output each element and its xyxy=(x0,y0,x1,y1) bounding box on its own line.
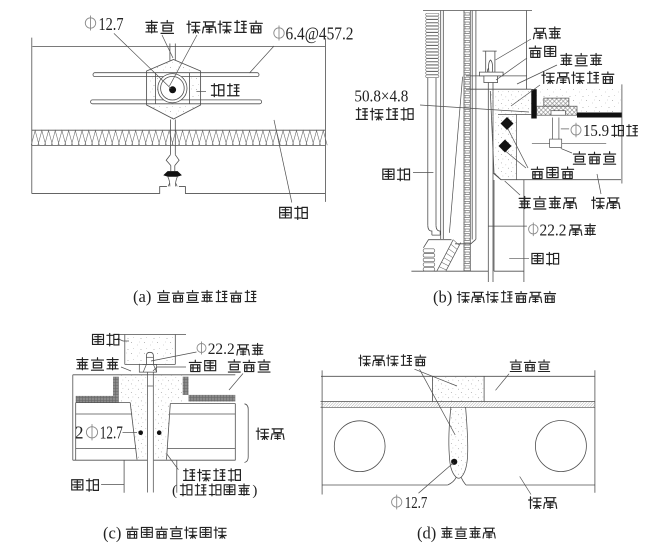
svg-text:50.8×4.8: 50.8×4.8 xyxy=(354,87,408,106)
svg-text:6.4@457.2: 6.4@457.2 xyxy=(286,24,354,44)
svg-text:22.2: 22.2 xyxy=(540,221,567,240)
svg-text:(d): (d) xyxy=(417,524,436,543)
svg-text:12.7: 12.7 xyxy=(405,493,428,512)
svg-text:22.2: 22.2 xyxy=(208,341,235,358)
svg-text:(a): (a) xyxy=(133,287,151,306)
svg-text:): ) xyxy=(252,483,257,499)
svg-text:(b): (b) xyxy=(433,288,452,307)
svg-text:12.7: 12.7 xyxy=(100,423,123,443)
svg-text:2: 2 xyxy=(75,423,84,443)
svg-text:15.9: 15.9 xyxy=(583,121,609,140)
svg-text:(: ( xyxy=(172,483,177,499)
svg-text:(c): (c) xyxy=(103,524,121,543)
svg-text:12.7: 12.7 xyxy=(99,14,124,34)
